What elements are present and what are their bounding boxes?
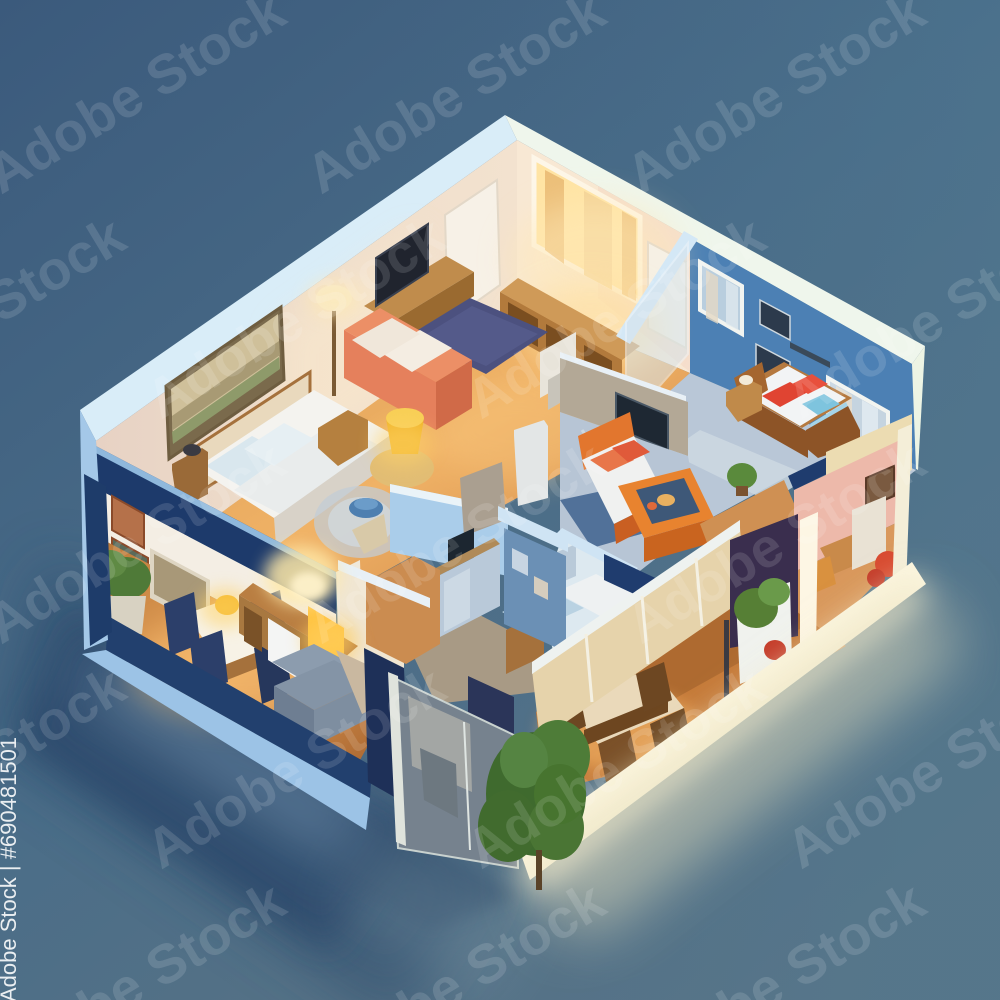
svg-text:Adobe Stock | #690481501: Adobe Stock | #690481501 <box>0 737 21 1000</box>
